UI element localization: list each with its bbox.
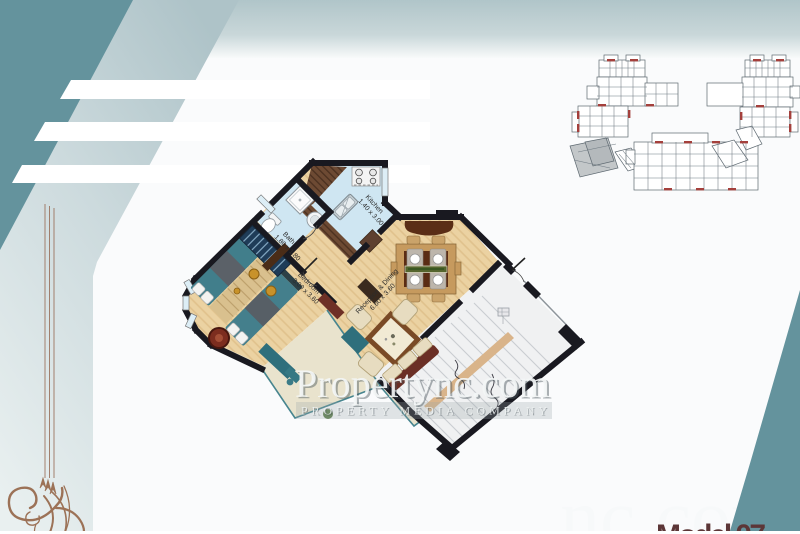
svg-text:Propertync.com: Propertync.com xyxy=(295,361,550,406)
